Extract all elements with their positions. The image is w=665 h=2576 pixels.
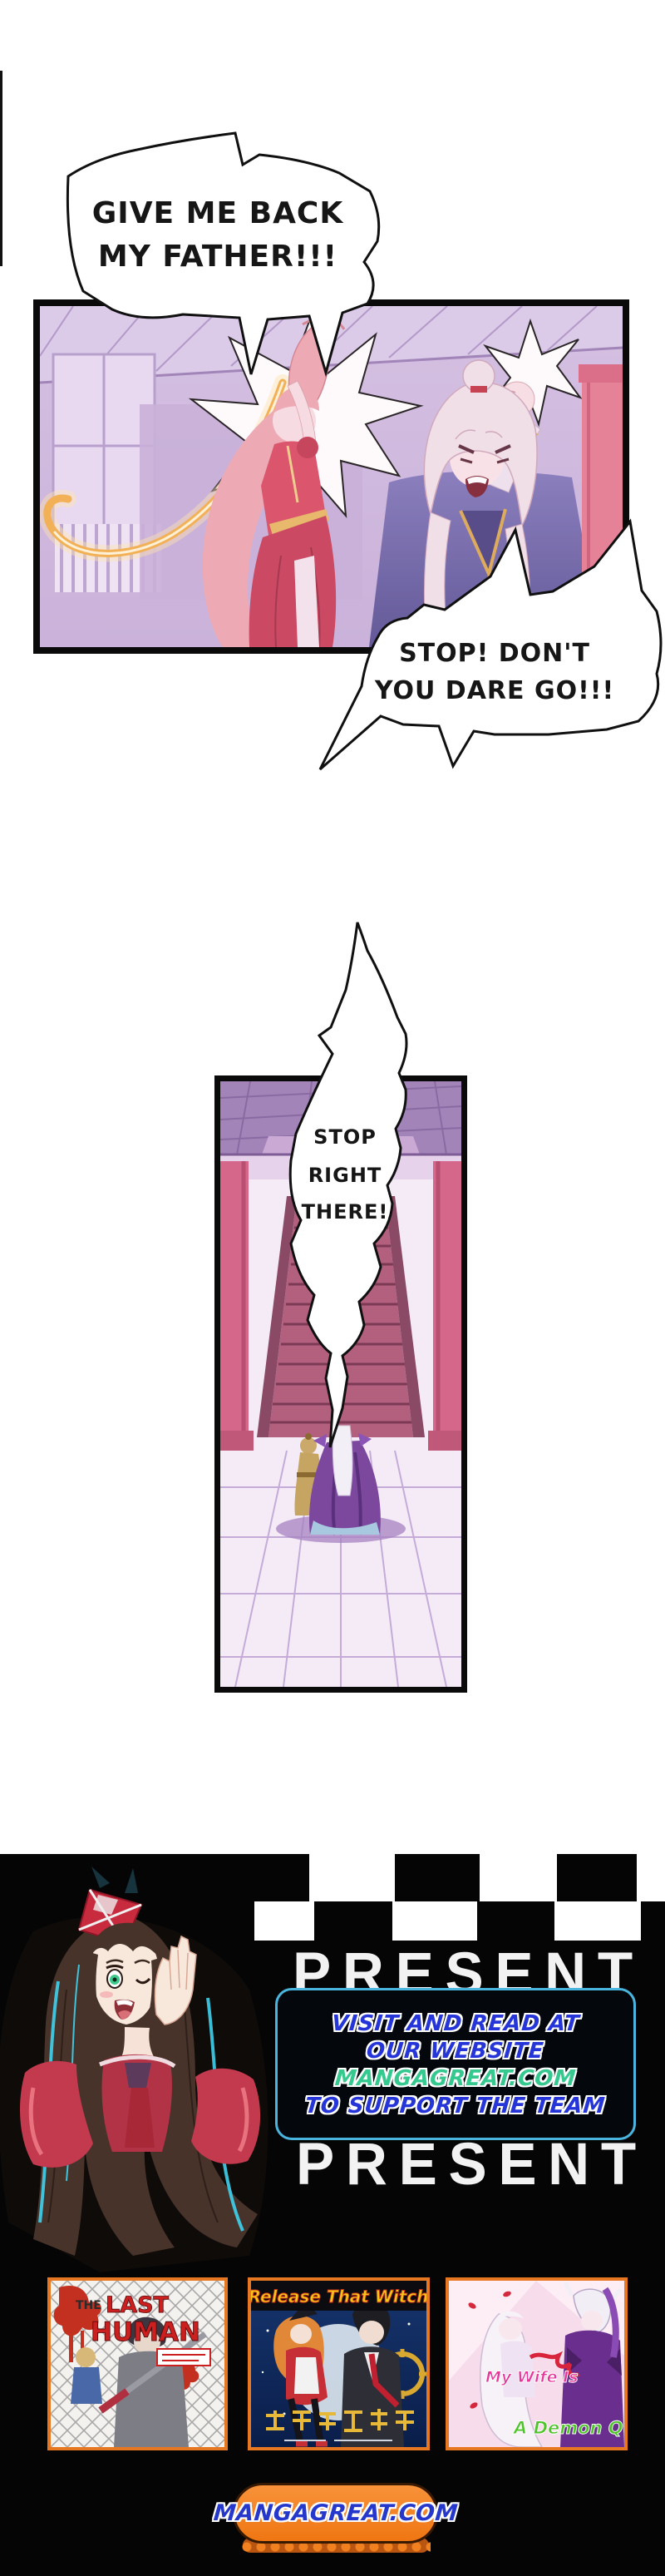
- site-button-label: MANGAGREAT.COM: [212, 2500, 459, 2526]
- cover2-title: Release That Witch: [251, 2287, 426, 2307]
- cover-2-art: Release That Witch: [251, 2281, 426, 2447]
- cover-my-wife-is-a-demon-queen[interactable]: My Wife Is A Demon Queen: [446, 2277, 628, 2450]
- bubble3-line2: RIGHT: [308, 1164, 382, 1187]
- cover1-stamp: [157, 2349, 210, 2366]
- speech-bubble-3: STOP RIGHT THERE!: [266, 911, 432, 1460]
- manga-page: GIVE ME BACK MY FATHER!!! STOP! DON'T YO…: [0, 0, 665, 2576]
- promo-line-4: TO SUPPORT THE TEAM: [304, 2094, 607, 2119]
- cover-3-art: My Wife Is A Demon Queen: [449, 2281, 624, 2447]
- bubble2-line2: YOU DARE GO!!!: [374, 676, 614, 705]
- bubble1-line1: GIVE ME BACK: [92, 196, 344, 230]
- speech-bubble-2: STOP! DON'T YOU DARE GO!!!: [299, 512, 665, 786]
- dress: [20, 2054, 260, 2168]
- bubble3-line1: STOP: [313, 1125, 377, 1149]
- cover1-title-last: LAST: [106, 2292, 170, 2318]
- bubble1-line2: MY FATHER!!!: [98, 240, 337, 274]
- cover3-title-line2: A Demon Queen: [512, 2418, 624, 2438]
- cover3-title-line1: My Wife Is: [485, 2368, 579, 2386]
- cover-release-that-witch[interactable]: Release That Witch: [248, 2277, 430, 2450]
- page-edge-line: [0, 71, 2, 266]
- promo-box: VISIT AND READ AT OUR WEBSITE MANGAGREAT…: [275, 1988, 636, 2140]
- cover1-title-human: HUMAN: [91, 2317, 200, 2347]
- promo-line-1: VISIT AND READ AT: [330, 2011, 580, 2036]
- promo-line-2: OUR WEBSITE: [366, 2039, 545, 2064]
- bubble3-line3: THERE!: [302, 1200, 389, 1224]
- site-button[interactable]: MANGAGREAT.COM: [233, 2483, 438, 2544]
- bubble2-line1: STOP! DON'T: [399, 639, 590, 668]
- credits-footer: PRESENT PRESENT VISIT AND READ AT OUR WE…: [0, 1854, 665, 2576]
- cover-the-last-human[interactable]: THE LAST HUMAN: [47, 2277, 228, 2450]
- promo-line-3: MANGAGREAT.COM: [334, 2066, 578, 2091]
- cover-1-art: THE LAST HUMAN: [51, 2281, 224, 2447]
- mascot-girl-illustration: [0, 1865, 291, 2272]
- speech-bubble-1: GIVE ME BACK MY FATHER!!!: [33, 125, 391, 383]
- cover1-title-the: THE: [76, 2299, 101, 2312]
